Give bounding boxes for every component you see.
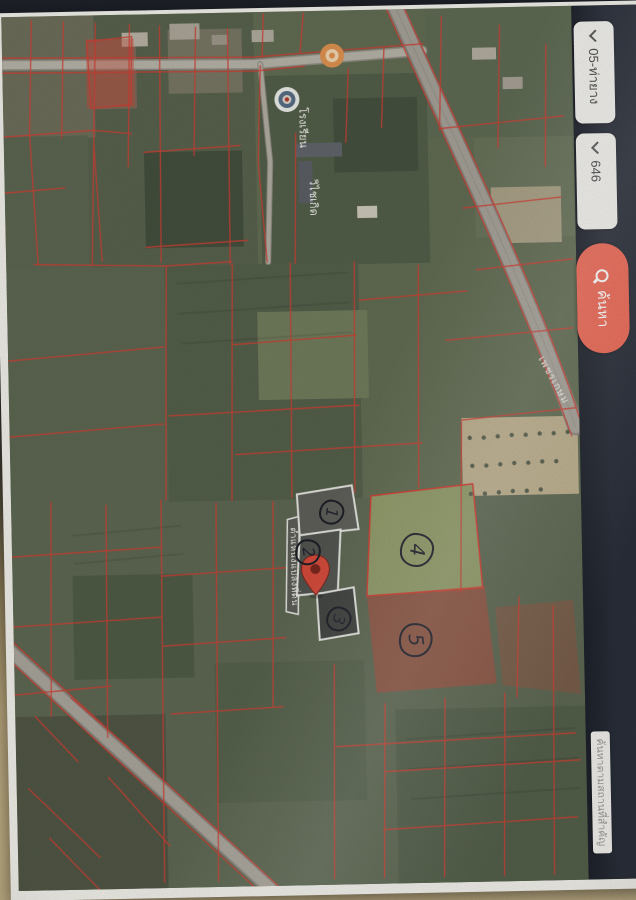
zone-select-value: 05-ท่ายาง <box>583 48 605 104</box>
chevron-down-icon <box>589 29 602 42</box>
zone-select[interactable]: 05-ท่ายาง <box>573 21 615 124</box>
sheet-select-value: 646 <box>589 160 604 182</box>
chevron-down-icon <box>591 141 604 154</box>
paper-sheet: โรงเรียน วิไชเกิด เพชรเกษม ตำแหน่งแปลงที… <box>0 0 636 900</box>
sheet-select[interactable]: 646 <box>576 133 618 230</box>
school-label-line2: วิไชเกิด <box>307 178 321 216</box>
handwritten-number-4: 4 <box>399 532 435 568</box>
handwritten-number-5: 5 <box>397 621 434 658</box>
photographed-print: โรงเรียน วิไชเกิด เพชรเกษม ตำแหน่งแปลงที… <box>0 0 636 900</box>
satellite-map[interactable]: โรงเรียน วิไชเกิด เพชรเกษม ตำแหน่งแปลงที… <box>1 6 588 891</box>
handwritten-number-3: 3 <box>324 604 353 633</box>
search-button[interactable]: ค้นหา <box>576 243 630 354</box>
search-mode-tab[interactable]: ค้นหาตามสถานที่สำคัญ <box>591 731 612 853</box>
handwritten-number-1: 1 <box>318 498 346 526</box>
search-mode-tab-label: ค้นหาตามสถานที่สำคัญ <box>592 738 611 846</box>
handwritten-number-2: 2 <box>294 538 323 567</box>
search-icon <box>596 269 609 282</box>
school-label-line1: โรงเรียน <box>296 107 311 149</box>
app-screenshot: โรงเรียน วิไชเกิด เพชรเกษม ตำแหน่งแปลงที… <box>1 4 636 891</box>
search-button-label: ค้นหา <box>591 290 615 328</box>
